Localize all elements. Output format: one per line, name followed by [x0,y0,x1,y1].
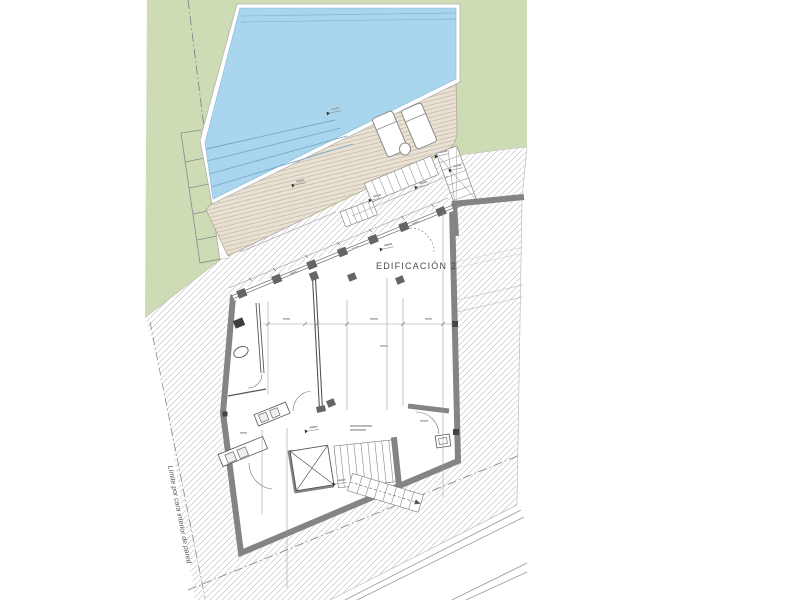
elevator [288,444,334,492]
road-edge-line [452,563,527,600]
road-edge-line [466,572,527,600]
side-table [400,143,411,155]
plan-svg: Límite por cara interior de pared [0,0,800,600]
wall-joint-mark [223,412,228,417]
floor-plan-drawing: Límite por cara interior de pared [0,0,800,600]
building-label: EDIFICACIÓN 2 [376,261,457,271]
wall-joint-mark [453,429,459,435]
